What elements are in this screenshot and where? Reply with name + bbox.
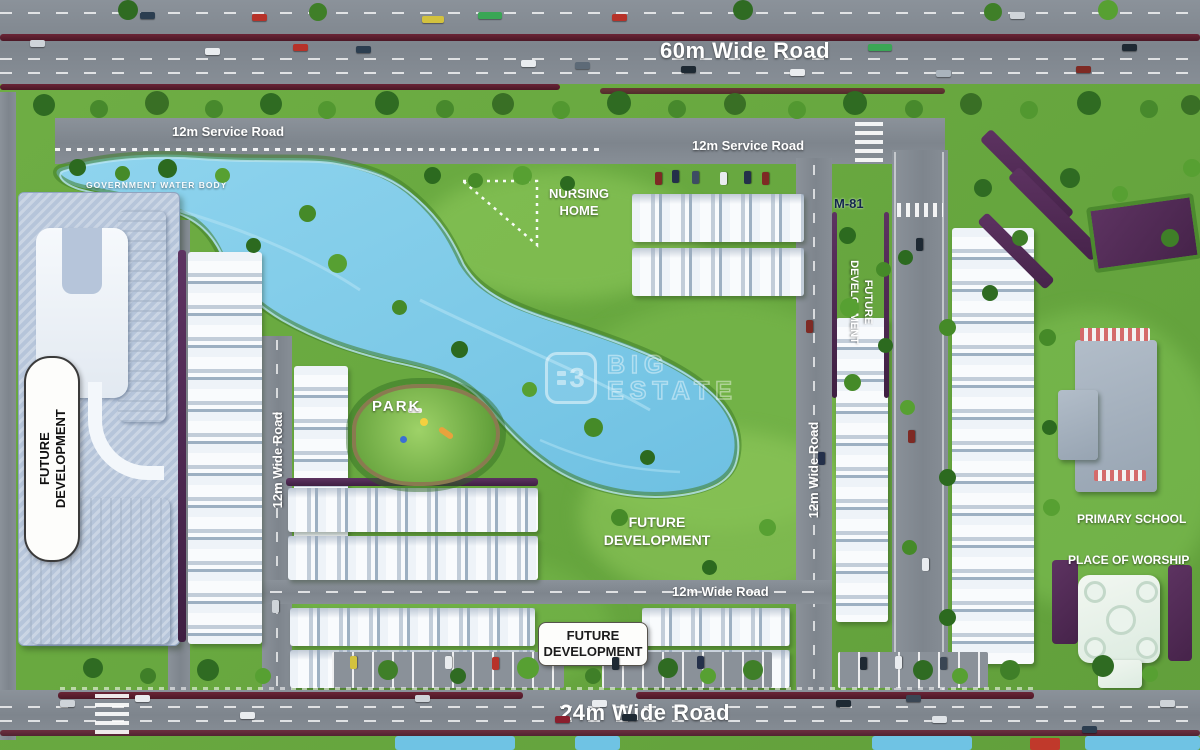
parking-dot-line bbox=[60, 687, 1035, 690]
crosswalk bbox=[897, 203, 943, 217]
parked-car bbox=[940, 657, 947, 670]
park-label: PARK bbox=[372, 398, 421, 415]
parked-car bbox=[692, 171, 699, 184]
nursing-plot-dashed-boundary bbox=[463, 181, 537, 245]
road-edge-line bbox=[894, 152, 896, 692]
car bbox=[521, 60, 536, 67]
parked-car bbox=[720, 172, 727, 185]
primary-school-label: PRIMARY SCHOOL bbox=[1077, 512, 1186, 526]
car bbox=[1122, 44, 1137, 51]
temple-building bbox=[1078, 575, 1160, 663]
car bbox=[592, 700, 607, 707]
brand-watermark-text: BIG ESTATE bbox=[607, 352, 738, 405]
parked-car bbox=[445, 656, 452, 669]
car bbox=[140, 12, 155, 19]
school-building-wing bbox=[1058, 390, 1098, 460]
car bbox=[790, 69, 805, 76]
future-development-sign-south: FUTURE DEVELOPMENT bbox=[538, 622, 648, 666]
playground-item bbox=[420, 418, 428, 426]
swimming-pool bbox=[395, 736, 515, 750]
future-development-tower-sign: FUTURE DEVELOPMENT bbox=[24, 356, 80, 562]
swimming-pool bbox=[575, 736, 620, 750]
car bbox=[60, 700, 75, 707]
swimming-pool bbox=[1085, 736, 1200, 750]
villa-row bbox=[632, 248, 804, 296]
car bbox=[836, 700, 851, 707]
nursing-home-label: NURSING HOME bbox=[544, 186, 614, 220]
future-development-tower-text: FUTURE DEVELOPMENT bbox=[36, 410, 67, 509]
road-right-arterial bbox=[892, 150, 948, 695]
bus bbox=[478, 12, 502, 19]
place-of-worship-label: PLACE OF WORSHIP bbox=[1068, 553, 1189, 567]
tower-u-notch bbox=[62, 228, 102, 294]
road-12m-left-label: 12m Wide Road bbox=[217, 400, 337, 520]
car bbox=[555, 716, 570, 723]
car bbox=[415, 695, 430, 702]
road-median-hedge bbox=[636, 692, 1034, 699]
car bbox=[575, 62, 590, 69]
car bbox=[135, 695, 150, 702]
car bbox=[612, 14, 627, 21]
road-12m-right-label: 12m Wide Road bbox=[753, 410, 873, 530]
school-awning bbox=[1080, 328, 1150, 341]
hedge-strip bbox=[178, 250, 186, 642]
tree-row-bottom bbox=[0, 0, 16, 16]
playground-item bbox=[400, 436, 407, 443]
brand-logo-glyph: 3 bbox=[569, 364, 585, 392]
bus bbox=[422, 16, 444, 23]
car bbox=[1010, 12, 1025, 19]
flower-bed bbox=[1168, 565, 1192, 661]
car bbox=[906, 695, 921, 702]
road-edge-line bbox=[942, 152, 944, 692]
parked-car bbox=[350, 656, 357, 669]
car bbox=[272, 600, 279, 613]
car bbox=[932, 716, 947, 723]
future-development-center-label: FUTURE DEVELOPMENT bbox=[596, 514, 718, 549]
bus bbox=[868, 44, 892, 51]
parked-car bbox=[655, 172, 662, 185]
car bbox=[1082, 726, 1097, 733]
car bbox=[681, 66, 696, 73]
parked-car bbox=[697, 656, 704, 669]
villa-row bbox=[288, 536, 538, 580]
parked-car bbox=[672, 170, 679, 183]
site-plan-map: 60m Wide Road 12m Service Road 12m Servi… bbox=[0, 0, 1200, 750]
brand-watermark: 3 BIG ESTATE bbox=[545, 352, 738, 405]
plot-marker-m81: M-81 bbox=[834, 196, 864, 211]
parked-car bbox=[492, 657, 499, 670]
crosswalk bbox=[95, 692, 129, 734]
parked-car bbox=[744, 171, 751, 184]
car bbox=[1160, 700, 1175, 707]
car bbox=[806, 320, 813, 333]
car bbox=[252, 14, 267, 21]
car bbox=[908, 430, 915, 443]
government-water-body-label: GOVERNMENT WATER BODY bbox=[86, 180, 227, 190]
car bbox=[205, 48, 220, 55]
car bbox=[293, 44, 308, 51]
car bbox=[922, 558, 929, 571]
road-12m-center-label: 12m Wide Road bbox=[672, 584, 769, 599]
car bbox=[240, 712, 255, 719]
future-development-strip-label: FUTURE DEVELOPMENT bbox=[800, 242, 920, 362]
villa-row bbox=[642, 608, 790, 646]
temple-forecourt bbox=[1098, 660, 1142, 688]
parked-car bbox=[612, 657, 619, 670]
road-24m-label: 24m Wide Road bbox=[560, 700, 730, 726]
brand-logo-icon: 3 bbox=[545, 352, 597, 404]
parked-car bbox=[860, 657, 867, 670]
car bbox=[30, 40, 45, 47]
car bbox=[622, 714, 637, 721]
villa-row bbox=[290, 608, 535, 646]
clubhouse-roof bbox=[1030, 738, 1060, 750]
car bbox=[1076, 66, 1091, 73]
car bbox=[916, 238, 923, 251]
flower-bed bbox=[1052, 560, 1078, 644]
car bbox=[356, 46, 371, 53]
parked-car bbox=[895, 656, 902, 669]
villa-row bbox=[952, 228, 1034, 664]
swimming-pool bbox=[872, 736, 972, 750]
car bbox=[936, 70, 951, 77]
car bbox=[818, 452, 825, 465]
school-awning bbox=[1094, 470, 1146, 481]
parked-car bbox=[762, 172, 769, 185]
villa-row bbox=[632, 194, 804, 242]
brand-logo-bars bbox=[557, 371, 566, 385]
